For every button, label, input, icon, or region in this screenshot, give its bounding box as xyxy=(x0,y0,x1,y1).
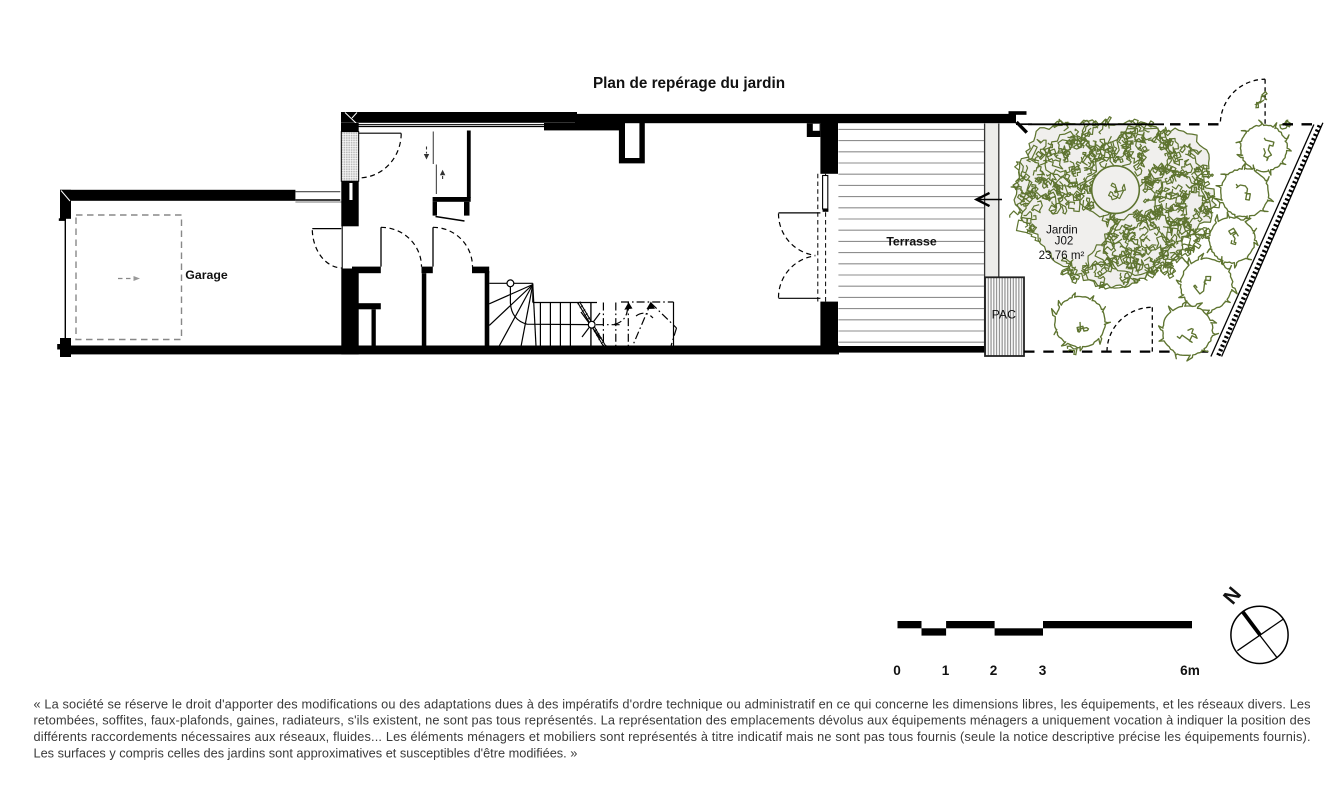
svg-text:1: 1 xyxy=(942,663,950,678)
svg-text:retombées, soffites, faux-plaf: retombées, soffites, faux-plafonds, gain… xyxy=(34,713,1311,728)
svg-text:Terrasse: Terrasse xyxy=(886,234,937,248)
svg-text:Les surfaces y compris celles: Les surfaces y compris celles des jardin… xyxy=(34,745,578,760)
svg-text:Plan de repérage du jardin: Plan de repérage du jardin xyxy=(593,75,785,92)
svg-text:0: 0 xyxy=(893,663,901,678)
svg-text:J02: J02 xyxy=(1055,234,1074,247)
svg-text:3: 3 xyxy=(1039,663,1047,678)
svg-text:« La société se réserve le dro: « La société se réserve le droit d'appor… xyxy=(34,696,1311,711)
svg-text:6m: 6m xyxy=(1180,663,1200,678)
svg-text:23,76 m²: 23,76 m² xyxy=(1039,249,1085,262)
svg-text:différents raccordements néces: différents raccordements nécessaires aux… xyxy=(34,729,1311,744)
svg-text:PAC: PAC xyxy=(992,307,1016,321)
svg-text:2: 2 xyxy=(990,663,998,678)
svg-text:Garage: Garage xyxy=(185,268,228,282)
